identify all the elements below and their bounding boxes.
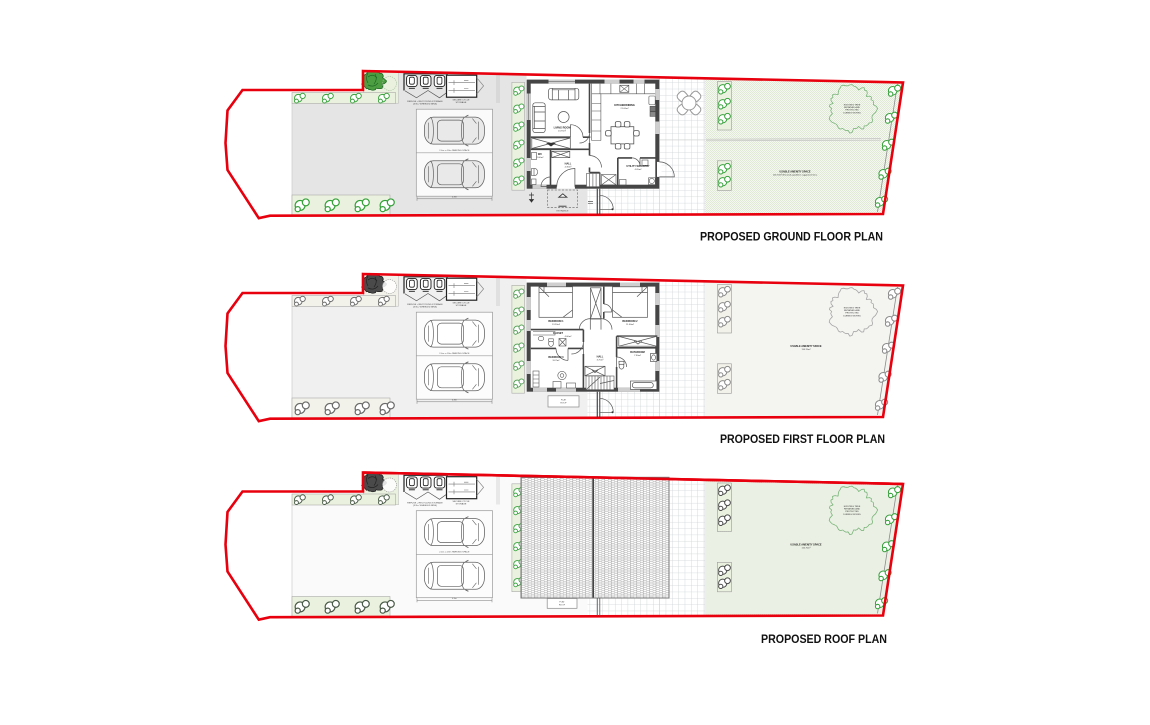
svg-text:KITCHEN/DINING: KITCHEN/DINING <box>614 104 635 107</box>
svg-text:21.00m²: 21.00m² <box>620 107 628 110</box>
svg-text:13.20m²: 13.20m² <box>552 323 560 326</box>
svg-text:13.75m²: 13.75m² <box>558 129 566 132</box>
svg-text:BATHROOM: BATHROOM <box>630 351 645 354</box>
svg-text:HALL: HALL <box>565 163 572 166</box>
svg-text:FLAT: FLAT <box>559 601 565 604</box>
svg-text:USABLE AMENITY SPACE: USABLE AMENITY SPACE <box>790 543 822 546</box>
svg-text:USABLE AMENITY SPACE: USABLE AMENITY SPACE <box>779 170 811 173</box>
svg-text:LIVING ROOM: LIVING ROOM <box>554 126 571 129</box>
svg-text:WC: WC <box>538 153 542 156</box>
svg-text:ENTRANCE: ENTRANCE <box>556 210 569 213</box>
svg-text:PROPOSED ROOF PLAN: PROPOSED ROOF PLAN <box>761 632 887 646</box>
svg-text:PROPOSED FIRST FLOOR PLAN: PROPOSED FIRST FLOOR PLAN <box>720 432 885 446</box>
svg-text:4.35m²: 4.35m² <box>565 166 572 169</box>
svg-text:PROPOSED GROUND FLOOR PLAN: PROPOSED GROUND FLOOR PLAN <box>700 230 883 244</box>
svg-text:116.70m²: 116.70m² <box>801 348 810 351</box>
svg-text:11.60m²: 11.60m² <box>626 323 634 326</box>
svg-text:4.05m²: 4.05m² <box>635 168 642 171</box>
svg-text:9.67m²: 9.67m² <box>553 359 560 362</box>
svg-text:UTILITY W/PANTRY: UTILITY W/PANTRY <box>626 165 649 168</box>
svg-text:ROOF: ROOF <box>560 402 567 404</box>
svg-text:USABLE AMENITY SPACE: USABLE AMENITY SPACE <box>790 345 822 348</box>
svg-text:ROOF: ROOF <box>559 604 566 606</box>
svg-text:FLAT: FLAT <box>561 399 567 402</box>
svg-text:BEDROOM 3: BEDROOM 3 <box>548 356 564 359</box>
svg-text:116.70m²: 116.70m² <box>801 547 810 550</box>
svg-text:BEDROOM 1: BEDROOM 1 <box>548 320 564 323</box>
svg-text:116.70m² (Exceeds guideline su: 116.70m² (Exceeds guideline suggested mi… <box>773 174 818 177</box>
svg-text:7.50m²: 7.50m² <box>634 354 641 357</box>
svg-text:2.00m²: 2.00m² <box>537 156 544 159</box>
svg-text:4.00m²: 4.00m² <box>565 335 572 338</box>
svg-text:HALL: HALL <box>597 355 604 358</box>
svg-text:BEDROOM 2: BEDROOM 2 <box>622 320 638 323</box>
svg-text:CLOSET: CLOSET <box>553 332 564 335</box>
svg-text:3.70m²: 3.70m² <box>597 358 604 361</box>
